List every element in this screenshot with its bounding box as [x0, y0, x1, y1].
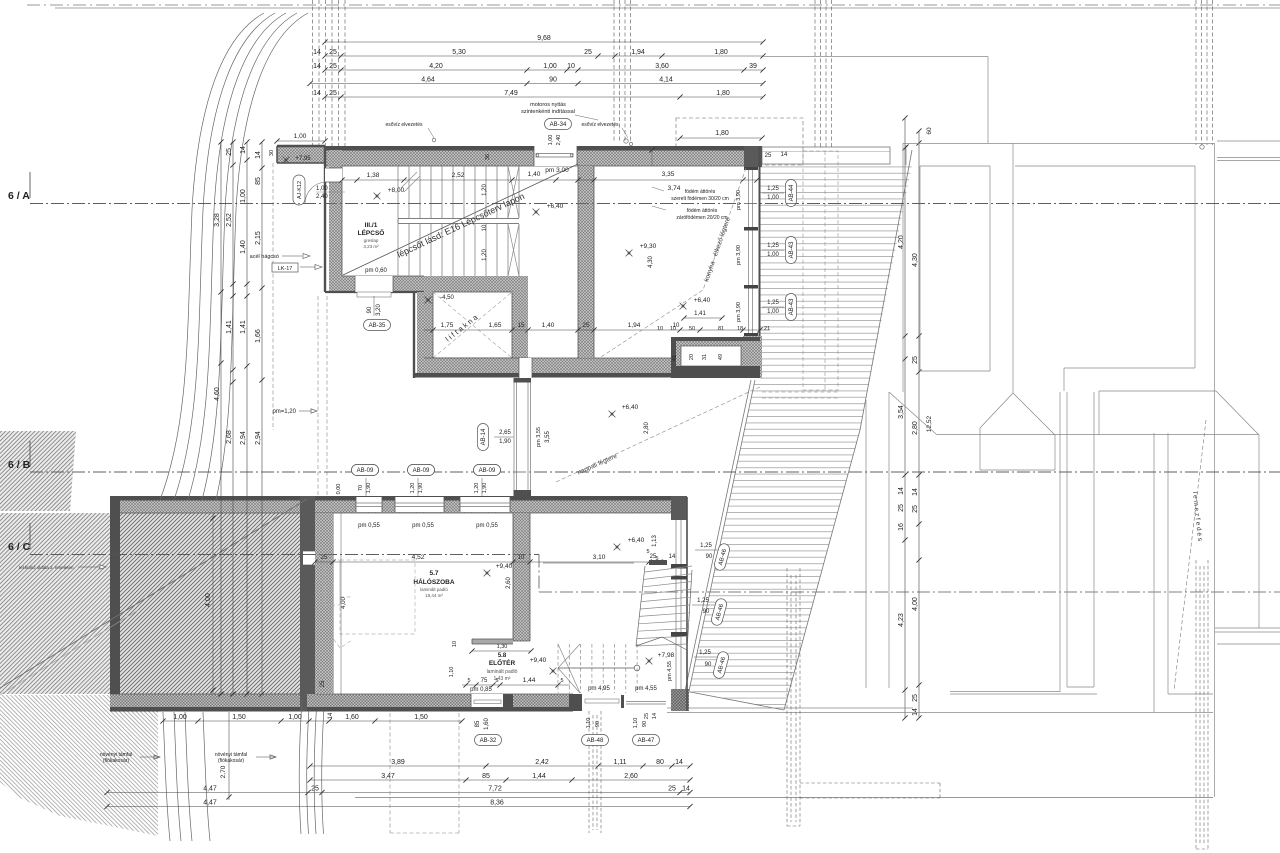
svg-text:2,94: 2,94: [240, 431, 247, 445]
svg-text:16: 16: [898, 523, 905, 531]
svg-text:75: 75: [481, 678, 488, 684]
svg-text:pm 0,85: pm 0,85: [470, 687, 492, 693]
svg-text:85: 85: [475, 720, 481, 727]
svg-text:1,60: 1,60: [345, 714, 359, 721]
svg-text:10: 10: [482, 224, 488, 231]
svg-text:14: 14: [328, 712, 334, 719]
svg-text:25: 25: [644, 713, 650, 719]
svg-text:1,44: 1,44: [532, 773, 546, 780]
svg-text:25: 25: [329, 49, 337, 56]
svg-text:30: 30: [269, 150, 275, 156]
svg-text:1,40: 1,40: [528, 171, 541, 178]
svg-text:5.7: 5.7: [429, 570, 438, 577]
svg-text:1,25: 1,25: [697, 598, 709, 604]
svg-text:90: 90: [549, 76, 557, 83]
svg-text:90: 90: [705, 662, 712, 668]
svg-text:pm 4,95: pm 4,95: [588, 686, 610, 692]
svg-text:AB-09: AB-09: [357, 468, 374, 474]
svg-text:10: 10: [657, 326, 663, 332]
svg-text:3,10: 3,10: [593, 554, 606, 561]
svg-text:1,65: 1,65: [489, 322, 502, 329]
svg-text:14: 14: [652, 713, 658, 719]
svg-text:2,94: 2,94: [255, 431, 262, 445]
svg-text:6 / A: 6 / A: [8, 190, 30, 202]
svg-text:AJ-K12: AJ-K12: [297, 181, 303, 199]
svg-text:10: 10: [518, 555, 525, 561]
svg-text:1,90: 1,90: [482, 483, 488, 494]
svg-text:1,94: 1,94: [628, 322, 641, 329]
svg-text:2,60: 2,60: [506, 577, 512, 589]
svg-text:2,80: 2,80: [912, 421, 919, 435]
svg-text:4,30: 4,30: [648, 256, 654, 268]
svg-text:+6,40: +6,40: [628, 537, 645, 544]
svg-text:födém áttörés: födém áttörés: [685, 189, 716, 195]
svg-text:1,80: 1,80: [714, 49, 728, 56]
svg-text:4,20: 4,20: [429, 63, 443, 70]
svg-text:9,68: 9,68: [537, 35, 551, 42]
svg-text:AB-34: AB-34: [550, 122, 567, 128]
svg-text:LK-17: LK-17: [278, 266, 293, 272]
svg-text:1,20: 1,20: [410, 483, 416, 494]
svg-text:pm 3,90: pm 3,90: [736, 245, 742, 265]
svg-text:motoros nyitás: motoros nyitás: [530, 102, 566, 108]
svg-text:25: 25: [584, 49, 592, 56]
svg-text:1,10: 1,10: [449, 667, 455, 678]
svg-text:25: 25: [321, 555, 328, 561]
svg-text:AB-35: AB-35: [369, 323, 386, 329]
svg-text:4,30: 4,30: [912, 253, 919, 267]
svg-text:21: 21: [764, 326, 770, 332]
svg-text:2,52: 2,52: [226, 213, 233, 227]
svg-text:50: 50: [689, 326, 695, 332]
svg-text:10: 10: [452, 641, 458, 647]
svg-text:2,42: 2,42: [535, 759, 549, 766]
svg-text:+9,30: +9,30: [640, 243, 657, 250]
svg-text:pm 0,60: pm 0,60: [365, 268, 387, 274]
svg-text:6 / B: 6 / B: [8, 459, 31, 471]
svg-text:5.8: 5.8: [498, 653, 507, 659]
svg-text:1,94: 1,94: [631, 49, 645, 56]
svg-text:1,20: 1,20: [482, 249, 488, 261]
svg-text:1,00: 1,00: [767, 252, 779, 258]
svg-text:25: 25: [582, 322, 590, 329]
svg-text:36: 36: [485, 154, 491, 160]
svg-text:3,35: 3,35: [662, 171, 675, 178]
svg-text:laminált padló: laminált padló: [487, 669, 518, 675]
svg-text:1,30: 1,30: [497, 644, 508, 650]
svg-text:10: 10: [673, 323, 680, 329]
svg-text:1,20: 1,20: [474, 483, 480, 494]
svg-text:AB-09: AB-09: [479, 468, 496, 474]
svg-text:1,80: 1,80: [715, 130, 729, 137]
svg-text:90: 90: [595, 721, 601, 727]
svg-text:12,52: 12,52: [926, 415, 933, 432]
svg-text:pm 0,55: pm 0,55: [358, 523, 380, 529]
svg-text:14: 14: [255, 151, 262, 159]
svg-text:14: 14: [313, 90, 321, 97]
svg-text:5: 5: [560, 678, 563, 684]
svg-text:1,66: 1,66: [255, 329, 262, 343]
svg-text:15: 15: [517, 322, 525, 329]
svg-text:pm 3,90: pm 3,90: [736, 302, 742, 322]
svg-text:3,60: 3,60: [655, 63, 669, 70]
svg-text:AB-32: AB-32: [480, 738, 497, 744]
svg-text:acél hágcsó: acél hágcsó: [250, 254, 279, 260]
svg-text:80: 80: [656, 759, 664, 766]
svg-text:III./1: III./1: [365, 222, 378, 229]
svg-text:20: 20: [689, 354, 695, 360]
svg-text:4,14: 4,14: [659, 76, 673, 83]
svg-text:4,64: 4,64: [421, 76, 435, 83]
svg-text:14: 14: [898, 487, 905, 495]
svg-text:1,25: 1,25: [767, 300, 779, 306]
svg-text:3,54: 3,54: [898, 405, 905, 419]
svg-text:2,80: 2,80: [644, 422, 650, 434]
svg-text:laminált padló: laminált padló: [420, 587, 448, 592]
svg-text:4,47: 4,47: [203, 785, 217, 792]
svg-text:25: 25: [329, 90, 337, 97]
svg-text:2,40: 2,40: [556, 135, 562, 146]
svg-text:1,90: 1,90: [499, 439, 511, 445]
svg-text:1,11: 1,11: [613, 759, 626, 766]
svg-text:2,40: 2,40: [316, 194, 328, 200]
svg-text:25: 25: [912, 356, 919, 364]
svg-text:3,47: 3,47: [381, 773, 395, 780]
svg-text:49: 49: [718, 354, 724, 360]
svg-text:1,25: 1,25: [767, 243, 779, 249]
svg-text:födém áttörés: födém áttörés: [687, 208, 718, 214]
svg-text:1,00: 1,00: [173, 714, 187, 721]
svg-text:14: 14: [313, 49, 321, 56]
svg-text:1,50: 1,50: [232, 714, 246, 721]
svg-text:+9,40: +9,40: [496, 563, 513, 570]
svg-text:LÉPCSŐ: LÉPCSŐ: [358, 228, 385, 237]
svg-text:1,40: 1,40: [542, 322, 555, 329]
svg-text:4,00: 4,00: [205, 593, 212, 607]
svg-text:85: 85: [255, 177, 262, 185]
svg-text:AB-14: AB-14: [481, 428, 487, 445]
svg-text:1,41: 1,41: [694, 311, 706, 317]
svg-text:14: 14: [912, 488, 919, 496]
svg-text:60: 60: [926, 127, 933, 135]
svg-text:tel.külső oldala 2. emeleten: tel.külső oldala 2. emeleten: [19, 565, 74, 570]
svg-text:25: 25: [320, 680, 326, 687]
svg-text:szerelt födémen 30/20 cm: szerelt födémen 30/20 cm: [671, 196, 729, 202]
svg-text:+6,40: +6,40: [694, 297, 711, 304]
svg-text:AB-44: AB-44: [789, 184, 795, 201]
svg-text:2,60: 2,60: [624, 773, 638, 780]
svg-text:14: 14: [240, 146, 247, 154]
svg-text:5: 5: [495, 678, 498, 684]
svg-text:+8,00: +8,00: [388, 187, 405, 194]
svg-text:25: 25: [329, 63, 337, 70]
svg-text:31: 31: [702, 354, 708, 360]
svg-text:1,00: 1,00: [767, 195, 779, 201]
svg-text:1,60: 1,60: [484, 718, 490, 730]
svg-text:90: 90: [703, 609, 710, 615]
svg-text:4,00: 4,00: [341, 597, 347, 609]
svg-text:2,15: 2,15: [255, 231, 262, 245]
svg-text:1,00: 1,00: [294, 133, 307, 140]
svg-text:25: 25: [668, 785, 676, 792]
svg-text:1,00: 1,00: [548, 135, 554, 146]
svg-text:7,49: 7,49: [504, 90, 518, 97]
svg-text:szintenkénti indítással: szintenkénti indítással: [521, 109, 575, 115]
svg-text:14: 14: [781, 152, 788, 158]
svg-text:pm 4,55: pm 4,55: [667, 661, 673, 681]
svg-text:14: 14: [313, 63, 321, 70]
svg-text:25: 25: [765, 153, 772, 159]
svg-text:14: 14: [675, 759, 683, 766]
svg-text:7,72: 7,72: [488, 785, 502, 792]
svg-text:+9,40: +9,40: [530, 657, 547, 664]
svg-text:19,44 m²: 19,44 m²: [425, 593, 443, 598]
svg-text:25: 25: [912, 694, 919, 702]
svg-text:1,10: 1,10: [586, 718, 592, 729]
svg-text:39: 39: [749, 63, 757, 70]
svg-text:AB-43: AB-43: [789, 298, 795, 315]
svg-text:1,40: 1,40: [240, 240, 247, 254]
svg-text:1,00: 1,00: [767, 309, 779, 315]
svg-text:pm 0,55: pm 0,55: [476, 523, 498, 529]
svg-text:(fiókakosár): (fiókakosár): [103, 758, 129, 764]
svg-text:(fiókakosár): (fiókakosár): [218, 758, 244, 764]
svg-text:3,23 m²: 3,23 m²: [363, 244, 379, 249]
svg-text:3,74: 3,74: [668, 185, 681, 192]
svg-text:1,50: 1,50: [414, 714, 428, 721]
svg-text:25: 25: [311, 785, 319, 792]
svg-text:1,44: 1,44: [523, 677, 536, 684]
svg-text:4,60: 4,60: [214, 387, 221, 401]
svg-text:ELŐTÉR: ELŐTÉR: [489, 658, 516, 667]
svg-text:AB-43: AB-43: [789, 241, 795, 258]
svg-text:1,00: 1,00: [543, 63, 557, 70]
svg-text:25: 25: [226, 148, 233, 156]
svg-text:esővíz elvezetés: esővíz elvezetés: [386, 122, 423, 128]
svg-text:85: 85: [482, 773, 490, 780]
svg-text:14: 14: [912, 708, 919, 716]
svg-text:+6,40: +6,40: [547, 203, 564, 210]
svg-text:41: 41: [672, 355, 678, 361]
svg-text:3,89: 3,89: [391, 759, 405, 766]
svg-text:1,75: 1,75: [441, 322, 454, 329]
svg-text:pm 3,55: pm 3,55: [536, 427, 542, 447]
svg-text:70: 70: [358, 485, 364, 491]
svg-text:1,41: 1,41: [240, 320, 247, 334]
svg-text:esővíz elvezetés: esővíz elvezetés: [582, 122, 619, 128]
svg-text:4,23: 4,23: [898, 613, 905, 627]
svg-text:pm 4,55: pm 4,55: [635, 686, 657, 692]
svg-text:1,00: 1,00: [240, 189, 247, 203]
svg-text:1,25: 1,25: [700, 543, 712, 549]
svg-text:1,90: 1,90: [366, 483, 372, 494]
svg-text:3,20: 3,20: [376, 304, 382, 316]
svg-text:8,36: 8,36: [490, 799, 504, 806]
svg-text:2,70: 2,70: [220, 765, 227, 778]
svg-text:1,13: 1,13: [652, 535, 658, 547]
svg-text:90: 90: [706, 554, 713, 560]
svg-text:1,20: 1,20: [482, 184, 488, 196]
svg-text:+7,98: +7,98: [658, 652, 675, 659]
svg-text:1,90: 1,90: [418, 483, 424, 494]
svg-text:3,28: 3,28: [214, 213, 221, 227]
svg-text:4,52: 4,52: [412, 554, 425, 561]
svg-text:5: 5: [467, 678, 470, 684]
svg-text:14: 14: [669, 554, 676, 560]
svg-text:+6,40: +6,40: [622, 404, 639, 411]
svg-text:10: 10: [567, 63, 575, 70]
svg-text:90: 90: [367, 306, 373, 313]
svg-text:1,25: 1,25: [767, 186, 779, 192]
svg-text:5: 5: [646, 549, 649, 555]
svg-text:4,20: 4,20: [898, 235, 905, 249]
svg-text:25: 25: [912, 505, 919, 513]
svg-text:AB-47: AB-47: [638, 738, 655, 744]
svg-text:1,00: 1,00: [316, 186, 328, 192]
svg-text:1,00: 1,00: [288, 714, 302, 721]
svg-text:4,00: 4,00: [912, 597, 919, 611]
svg-text:+7,95: +7,95: [295, 156, 311, 162]
svg-text:2,68: 2,68: [226, 430, 233, 444]
svg-text:zárófödémen 20/20 cm: zárófödémen 20/20 cm: [676, 215, 727, 221]
svg-text:5: 5: [655, 556, 658, 562]
svg-text:pm=1,20: pm=1,20: [272, 409, 296, 415]
svg-text:1,41: 1,41: [226, 320, 233, 334]
svg-text:4,47: 4,47: [203, 799, 217, 806]
svg-text:14: 14: [682, 785, 690, 792]
svg-text:pm 3,00: pm 3,00: [545, 167, 569, 174]
svg-text:greslap: greslap: [364, 238, 379, 243]
svg-text:1,10: 1,10: [633, 718, 639, 729]
svg-text:1,25: 1,25: [699, 650, 711, 656]
svg-text:AB-09: AB-09: [413, 468, 430, 474]
svg-text:pm 0,55: pm 0,55: [412, 523, 434, 529]
svg-text:2,52: 2,52: [452, 172, 465, 179]
svg-text:AB-48: AB-48: [587, 738, 604, 744]
svg-text:90: 90: [642, 721, 648, 727]
svg-text:HÁLÓSZOBA: HÁLÓSZOBA: [413, 577, 454, 586]
svg-text:25: 25: [898, 504, 905, 512]
svg-text:3,55: 3,55: [545, 431, 551, 443]
svg-text:pm 3,90: pm 3,90: [736, 190, 742, 210]
svg-text:1,80: 1,80: [716, 90, 730, 97]
svg-text:2,65: 2,65: [499, 430, 511, 436]
svg-text:6 / C: 6 / C: [8, 541, 31, 553]
svg-text:1,38: 1,38: [367, 172, 380, 179]
svg-text:81: 81: [718, 326, 724, 332]
svg-text:5,30: 5,30: [452, 49, 466, 56]
svg-text:-4,50: -4,50: [440, 295, 454, 301]
svg-text:0,00: 0,00: [336, 484, 342, 495]
